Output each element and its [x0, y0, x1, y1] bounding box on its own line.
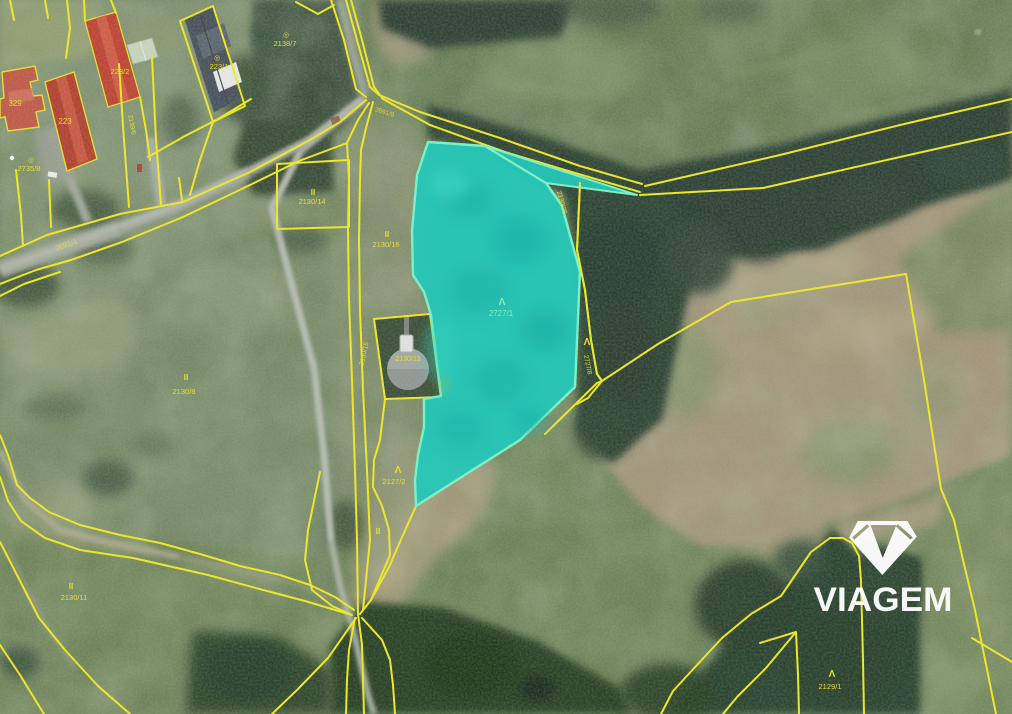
svg-text:II: II [69, 582, 73, 591]
svg-text:2127/2: 2127/2 [383, 477, 406, 486]
svg-text:◎: ◎ [283, 32, 289, 39]
svg-text:II: II [376, 527, 380, 536]
svg-text:2130/11: 2130/11 [61, 593, 88, 602]
svg-text:◎: ◎ [28, 157, 34, 164]
svg-text:Λ: Λ [584, 337, 591, 348]
svg-text:Λ: Λ [829, 669, 836, 680]
svg-text:2130/16: 2130/16 [372, 240, 399, 249]
svg-text:329: 329 [8, 99, 22, 108]
svg-text:2130/8: 2130/8 [173, 387, 196, 396]
svg-text:2727/1: 2727/1 [489, 309, 514, 318]
svg-text:VIAGEM: VIAGEM [814, 581, 953, 619]
svg-text:2130/14: 2130/14 [298, 197, 325, 206]
svg-text:Λ: Λ [395, 465, 402, 476]
svg-text:228/2: 228/2 [111, 67, 130, 76]
svg-text:2735/8: 2735/8 [18, 164, 41, 173]
svg-text:2129/1: 2129/1 [819, 682, 842, 691]
svg-text:II: II [385, 230, 389, 239]
svg-text:◎: ◎ [214, 55, 220, 62]
svg-text:2138/7: 2138/7 [274, 39, 297, 48]
svg-text:II: II [311, 188, 315, 197]
svg-text:223: 223 [58, 117, 72, 126]
svg-text:II: II [184, 373, 188, 382]
svg-text:Λ: Λ [499, 297, 506, 308]
svg-text:2130/13: 2130/13 [395, 356, 420, 363]
svg-text:223/1: 223/1 [210, 62, 229, 71]
